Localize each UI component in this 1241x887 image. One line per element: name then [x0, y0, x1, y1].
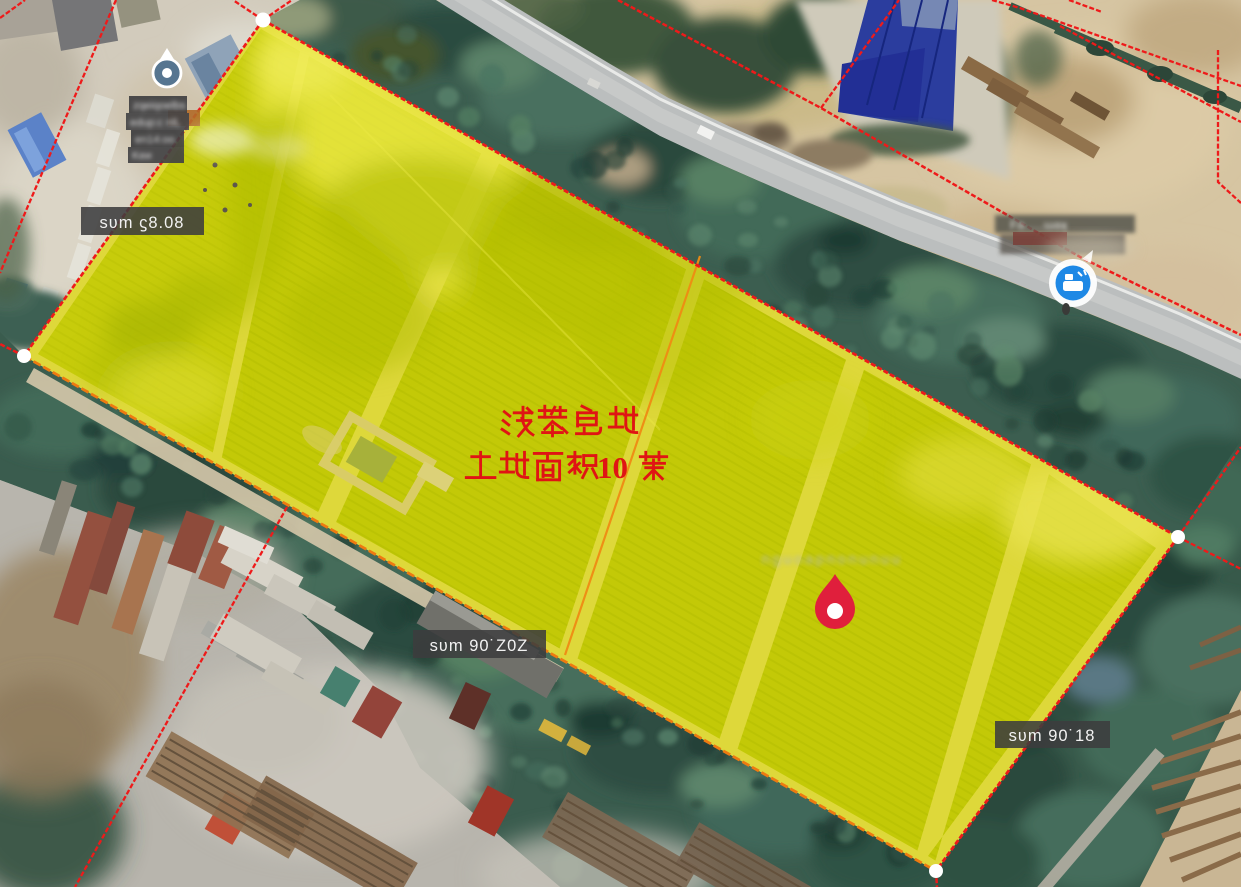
- svg-text:edup:c nlL: edup:c nlL: [130, 117, 181, 129]
- svg-text:sʋm 90˙Z0Z: sʋm 90˙Z0Z: [430, 637, 529, 655]
- svg-text:sʋm 90˙18: sʋm 90˙18: [1009, 727, 1096, 745]
- svg-text:sʋm ϛ8.08: sʋm ϛ8.08: [100, 214, 185, 232]
- svg-text:en14:oo: en14:oo: [135, 134, 175, 146]
- svg-text:Keᴎ: Keᴎ: [132, 150, 152, 162]
- svg-text:nguoapnonunuu: nguoapnonunuu: [762, 551, 903, 568]
- svg-text:Fa......ɯaʞ: Fa......ɯaʞ: [1010, 218, 1067, 232]
- svg-text:zqeiqoelbs: zqeiqoelbs: [133, 100, 186, 112]
- svg-text:10: 10: [597, 450, 628, 485]
